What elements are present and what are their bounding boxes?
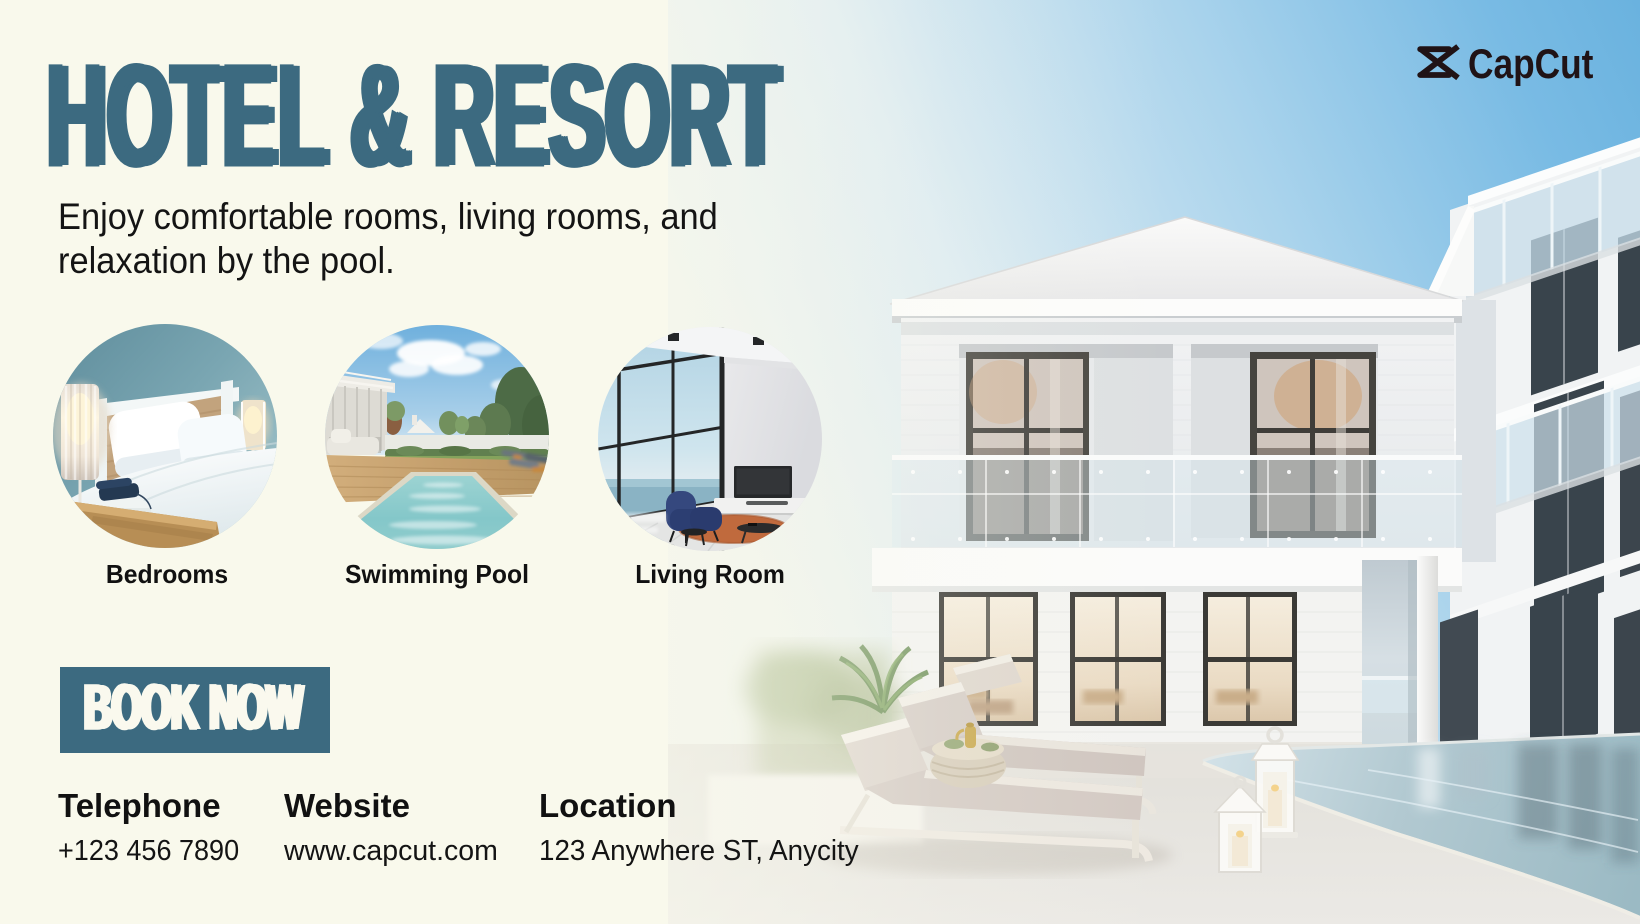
- svg-text:CapCut: CapCut: [1468, 42, 1593, 86]
